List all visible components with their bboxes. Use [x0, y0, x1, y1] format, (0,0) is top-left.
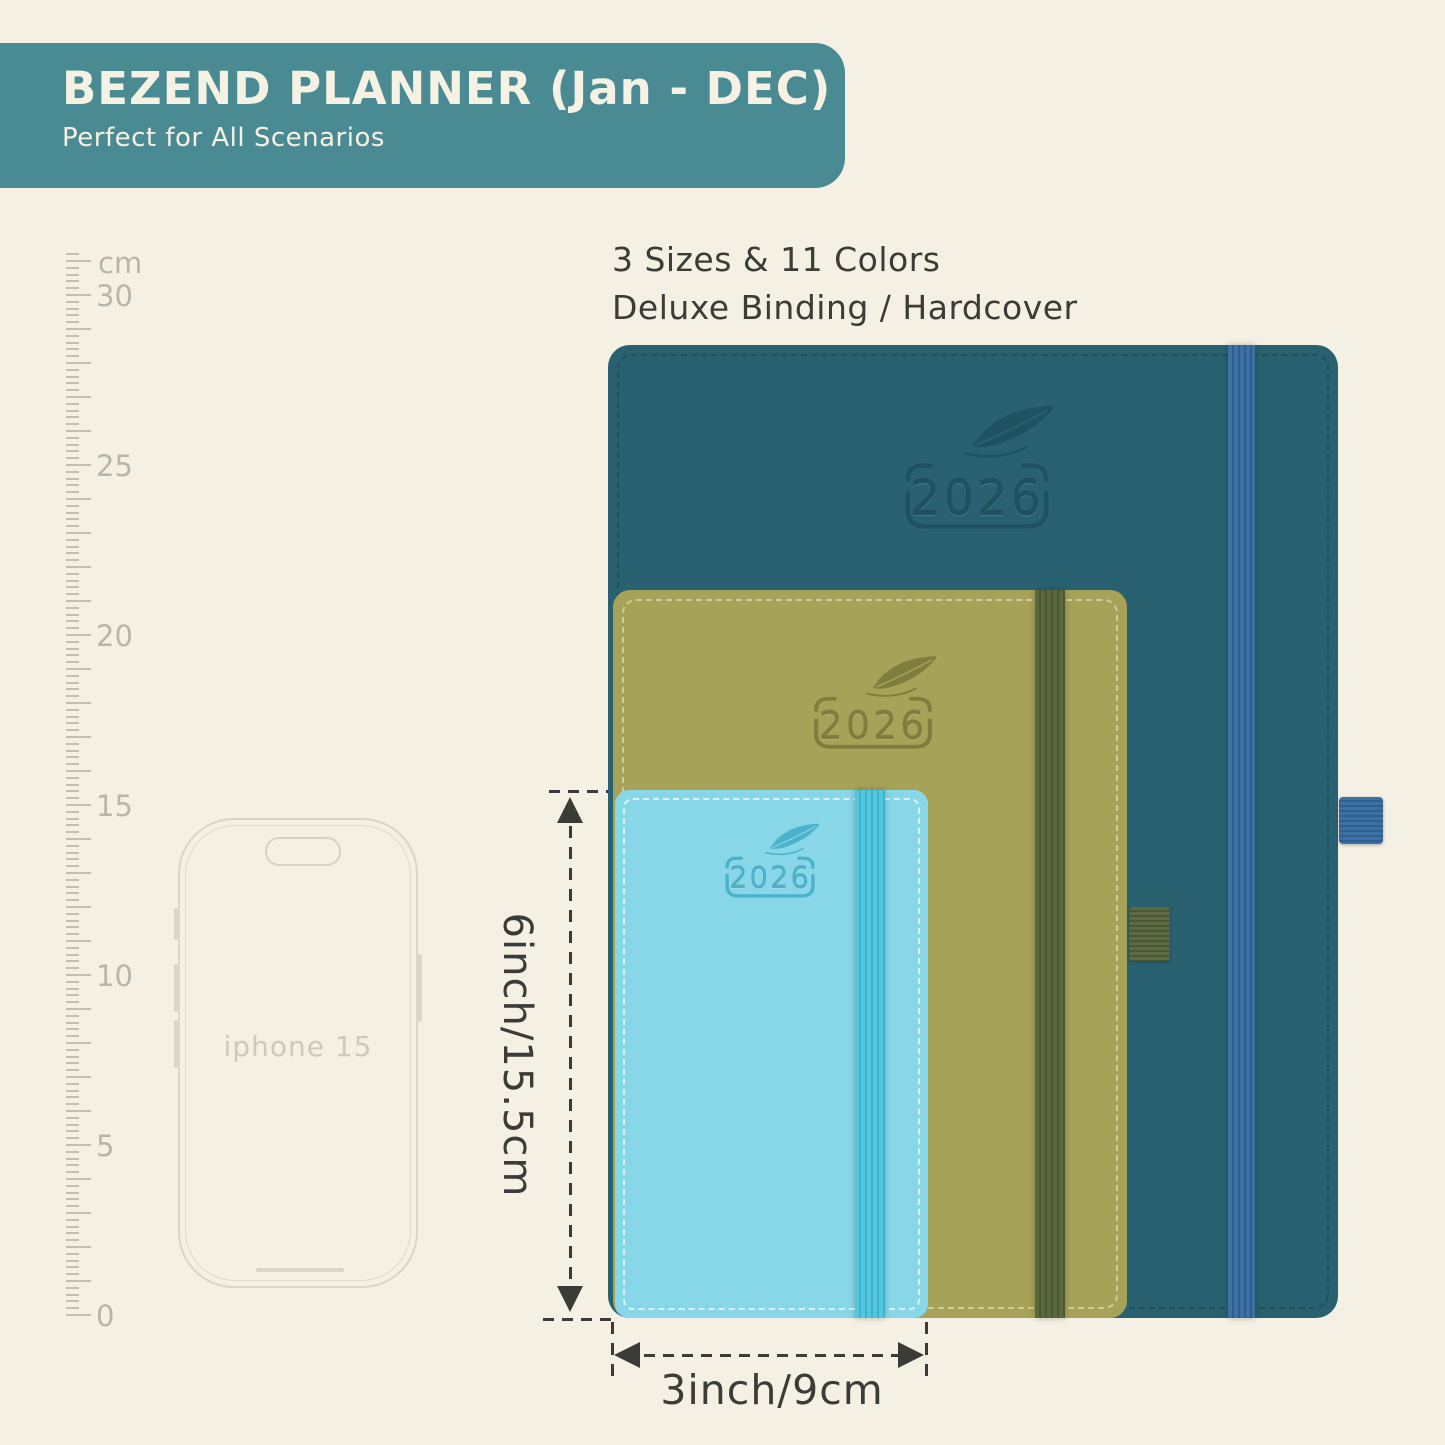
ruler-tick: [66, 872, 91, 874]
ruler-tick: [66, 512, 79, 514]
ruler-tick: [66, 301, 79, 303]
ruler-tick: [66, 253, 79, 255]
ruler-tick: [66, 1015, 79, 1017]
ruler-tick: [66, 926, 79, 928]
ruler-tick: [66, 743, 79, 745]
iphone-outline: iphone 15: [178, 818, 418, 1288]
title-banner: BEZEND PLANNER (Jan - DEC) Perfect for A…: [0, 43, 845, 188]
ruler-tick: [66, 1151, 79, 1153]
ruler-tick: [66, 484, 79, 486]
ruler-tick: [66, 627, 79, 629]
ruler-tick: [66, 899, 79, 901]
ruler-tick: [66, 1103, 79, 1105]
pen-loop: [1129, 907, 1170, 961]
ruler-tick: [66, 600, 91, 602]
ruler-tick: [66, 702, 91, 704]
ruler-tick: [66, 1008, 91, 1010]
height-dimension-label: 6inch/15.5cm: [494, 890, 540, 1220]
ruler-tick: [66, 382, 79, 384]
ruler-tick: [66, 892, 79, 894]
ruler-tick: [66, 967, 79, 969]
ruler-tick: [66, 498, 91, 500]
ruler-tick: [66, 1273, 79, 1275]
ruler-tick: [66, 695, 79, 697]
ruler-tick: [66, 879, 79, 881]
dimension-tick-top: [549, 790, 615, 793]
ruler-tick: [66, 1205, 79, 1207]
ruler-tick: [66, 614, 79, 616]
ruler-tick: [66, 1130, 79, 1132]
ruler-tick: [66, 1226, 79, 1228]
year-logo: 2026: [721, 822, 819, 900]
camera-cutout: [265, 837, 341, 866]
ruler-tick: [66, 1246, 91, 1248]
ruler-tick: [66, 940, 91, 942]
ruler-tick: [66, 661, 79, 663]
ruler-tick: [66, 294, 91, 296]
ruler-tick: [66, 1192, 79, 1194]
ruler-tick: [66, 933, 79, 935]
ruler-tick: [66, 274, 79, 276]
ruler-tick: [66, 852, 79, 854]
ruler-tick: [66, 423, 79, 425]
ruler-tick: [66, 1090, 79, 1092]
ruler-tick: [66, 430, 91, 432]
ruler-mark-label: 10: [96, 959, 166, 993]
dimension-line-vertical: [569, 826, 572, 1284]
ruler-tick: [66, 478, 79, 480]
elastic-band: [1035, 590, 1065, 1318]
ruler-tick: [66, 586, 79, 588]
ruler-tick: [66, 457, 79, 459]
ruler-tick: [66, 1287, 79, 1289]
product-title: BEZEND PLANNER (Jan - DEC): [62, 64, 845, 114]
ruler-tick: [66, 981, 79, 983]
ruler-tick: [66, 280, 79, 282]
ruler-tick: [66, 369, 79, 371]
ruler-tick: [66, 491, 79, 493]
ruler-tick: [66, 1124, 79, 1126]
year-label: 2026: [898, 471, 1056, 527]
ruler-tick: [66, 260, 91, 262]
feature-line-sizes: 3 Sizes & 11 Colors: [612, 236, 1078, 284]
ruler-tick: [66, 1300, 79, 1302]
ruler-tick: [66, 1212, 91, 1214]
ruler-tick: [66, 804, 91, 806]
ruler-tick: [66, 580, 79, 582]
ruler-tick: [66, 722, 79, 724]
ruler-tick: [66, 1069, 79, 1071]
ruler-tick: [66, 525, 79, 527]
ruler-tick: [66, 342, 79, 344]
arrow-left-icon: [614, 1342, 640, 1368]
ruler-tick: [66, 1110, 91, 1112]
ruler-tick: [66, 321, 79, 323]
planner-small: 2026: [615, 790, 928, 1318]
ruler-tick: [66, 682, 79, 684]
pen-loop: [1339, 797, 1383, 844]
year-label: 2026: [721, 861, 819, 895]
ruler-tick: [66, 1117, 79, 1119]
ruler-tick: [66, 648, 79, 650]
iphone-label: iphone 15: [180, 1030, 416, 1063]
feather-icon: [964, 403, 1060, 459]
ruler-mark-label: 20: [96, 619, 166, 653]
ruler-tick: [66, 824, 79, 826]
ruler-unit-label: cm: [98, 246, 142, 280]
ruler-tick: [66, 1062, 79, 1064]
elastic-band: [1228, 345, 1255, 1318]
ruler-tick: [66, 410, 79, 412]
ruler-tick: [66, 716, 79, 718]
ruler-tick: [66, 688, 79, 690]
product-subtitle: Perfect for All Scenarios: [62, 123, 845, 153]
ruler-mark-label: 5: [96, 1129, 166, 1163]
ruler-tick: [66, 845, 79, 847]
volume-up-button: [174, 964, 179, 1012]
ruler-tick: [66, 1056, 79, 1058]
dimension-tick-bottom: [543, 1318, 615, 1321]
ruler-tick: [66, 777, 79, 779]
ruler-tick: [66, 1042, 91, 1044]
ruler-tick: [66, 1260, 79, 1262]
ruler-tick: [66, 1219, 79, 1221]
ruler-tick: [66, 960, 79, 962]
ruler-tick: [66, 1178, 91, 1180]
ruler-tick: [66, 736, 91, 738]
ruler-tick: [66, 831, 79, 833]
ruler-tick: [66, 750, 79, 752]
ruler-tick: [66, 396, 91, 398]
ruler-tick: [66, 994, 79, 996]
ruler-mark-label: 25: [96, 449, 166, 483]
ruler-tick: [66, 1266, 79, 1268]
feature-headline: 3 Sizes & 11 Colors Deluxe Binding / Har…: [612, 236, 1078, 332]
ruler-tick: [66, 471, 79, 473]
ruler-tick: [66, 811, 79, 813]
ruler-tick: [66, 566, 91, 568]
ruler-tick: [66, 974, 91, 976]
dimension-tick-right: [925, 1322, 928, 1380]
year-logo: 2026: [808, 654, 938, 752]
product-image: BEZEND PLANNER (Jan - DEC) Perfect for A…: [0, 0, 1445, 1445]
ruler-tick: [66, 505, 79, 507]
ruler-tick: [66, 464, 91, 466]
ruler-tick: [66, 1232, 79, 1234]
ruler-tick: [66, 328, 91, 330]
ruler-tick: [66, 348, 79, 350]
ruler-tick: [66, 1280, 91, 1282]
ruler-tick: [66, 920, 79, 922]
ruler-tick: [66, 790, 79, 792]
ruler-tick: [66, 607, 79, 609]
ruler-mark-label: 30: [96, 279, 166, 313]
feature-line-binding: Deluxe Binding / Hardcover: [612, 284, 1078, 332]
ruler-tick: [66, 654, 79, 656]
ruler-tick: [66, 1076, 91, 1078]
ruler-tick: [66, 756, 79, 758]
arrow-up-icon: [557, 797, 583, 823]
ruler-tick: [66, 416, 79, 418]
ruler-tick: [66, 403, 79, 405]
ruler-tick: [66, 886, 79, 888]
arrow-down-icon: [557, 1286, 583, 1312]
ruler-tick: [66, 1239, 79, 1241]
ruler-tick: [66, 1158, 79, 1160]
ruler-tick: [66, 1171, 79, 1173]
ruler-tick: [66, 539, 79, 541]
ruler-tick: [66, 784, 79, 786]
width-dimension-label: 3inch/9cm: [642, 1366, 902, 1414]
ruler-tick: [66, 1144, 91, 1146]
ruler-tick: [66, 559, 79, 561]
ruler-tick: [66, 838, 91, 840]
ruler-tick: [66, 1028, 79, 1030]
ruler-tick: [66, 376, 79, 378]
ruler-tick: [66, 1022, 79, 1024]
elastic-band: [855, 790, 885, 1318]
ruler-tick: [66, 267, 79, 269]
ruler-tick: [66, 1001, 79, 1003]
ruler-tick: [66, 988, 79, 990]
ruler-tick: [66, 573, 79, 575]
ruler-tick: [66, 913, 79, 915]
ruler-tick: [66, 906, 91, 908]
ruler-tick: [66, 1035, 79, 1037]
year-logo: 2026: [898, 403, 1056, 533]
ruler-tick: [66, 797, 79, 799]
ruler-tick: [66, 1198, 79, 1200]
ruler-mark-label: 0: [96, 1299, 166, 1333]
ruler-tick: [66, 450, 79, 452]
ruler-tick: [66, 770, 91, 772]
power-button: [417, 954, 422, 1022]
feather-icon: [765, 822, 823, 856]
ruler-tick: [66, 634, 91, 636]
ruler-tick: [66, 437, 79, 439]
volume-down-button: [174, 1020, 179, 1068]
ruler-tick: [66, 858, 79, 860]
ruler-tick: [66, 1164, 79, 1166]
ruler-tick: [66, 865, 79, 867]
ruler-tick: [66, 308, 79, 310]
ruler-tick: [66, 1314, 91, 1316]
ruler-tick: [66, 709, 79, 711]
ruler-tick: [66, 1137, 79, 1139]
ruler-tick: [66, 444, 79, 446]
ruler-tick: [66, 947, 79, 949]
ruler-tick: [66, 1185, 79, 1187]
ruler-tick: [66, 1253, 79, 1255]
mute-switch: [174, 908, 179, 940]
ruler-tick: [66, 1083, 79, 1085]
ruler-tick: [66, 641, 79, 643]
ruler-tick: [66, 532, 91, 534]
ruler-mark-label: 15: [96, 789, 166, 823]
ruler-tick: [66, 593, 79, 595]
ruler-tick: [66, 546, 79, 548]
ruler-tick: [66, 763, 79, 765]
dimension-line-horizontal: [644, 1354, 898, 1357]
ruler-tick: [66, 314, 79, 316]
ruler-tick: [66, 1049, 79, 1051]
ruler-tick: [66, 729, 79, 731]
ruler-tick: [66, 1096, 79, 1098]
ruler-tick: [66, 818, 79, 820]
ruler-tick: [66, 287, 79, 289]
ruler-tick: [66, 335, 79, 337]
ruler-tick: [66, 389, 79, 391]
ruler-tick: [66, 362, 91, 364]
year-label: 2026: [808, 704, 938, 748]
arrow-right-icon: [898, 1342, 924, 1368]
ruler-tick: [66, 1294, 79, 1296]
ruler-tick: [66, 518, 79, 520]
home-indicator: [256, 1268, 344, 1272]
ruler-tick: [66, 552, 79, 554]
ruler-tick: [66, 675, 79, 677]
ruler-tick: [66, 355, 79, 357]
ruler-tick: [66, 668, 91, 670]
ruler-tick: [66, 954, 79, 956]
ruler-tick: [66, 1307, 79, 1309]
ruler-tick: [66, 620, 79, 622]
